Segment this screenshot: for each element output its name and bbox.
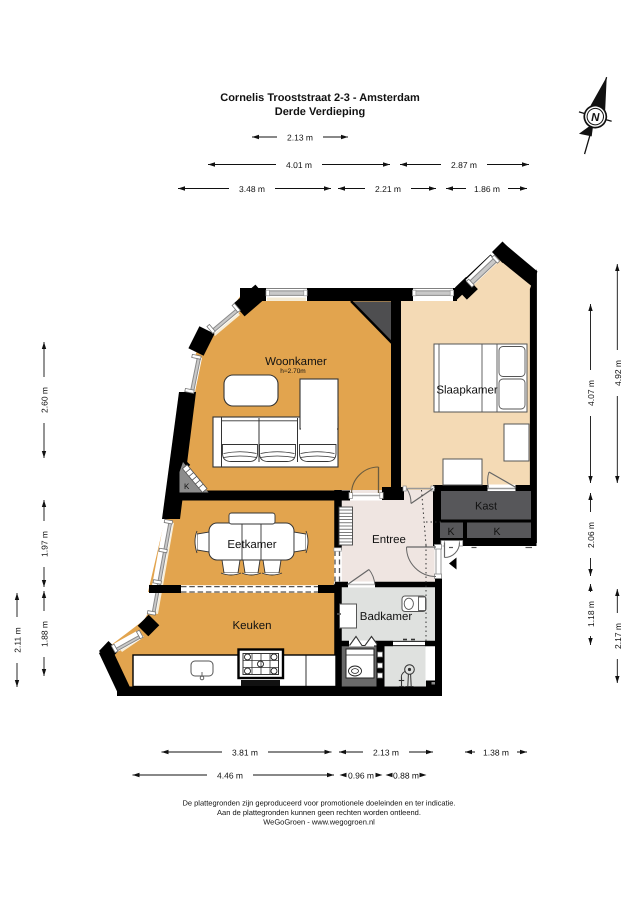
svg-text:h=2.70m: h=2.70m (280, 368, 305, 375)
svg-text:1.18 m: 1.18 m (586, 601, 596, 627)
svg-text:1.86 m: 1.86 m (474, 184, 500, 194)
svg-text:Slaapkamer: Slaapkamer (436, 385, 498, 397)
svg-text:2.13 m: 2.13 m (373, 748, 399, 758)
svg-text:4.07 m: 4.07 m (586, 380, 596, 406)
svg-text:2.87 m: 2.87 m (451, 160, 477, 170)
svg-text:K: K (493, 526, 500, 538)
svg-text:K: K (447, 526, 454, 538)
svg-text:4.46 m: 4.46 m (217, 771, 243, 781)
svg-text:2.21 m: 2.21 m (375, 184, 401, 194)
svg-text:2.11 m: 2.11 m (13, 627, 23, 652)
svg-text:2.17 m: 2.17 m (613, 623, 623, 649)
svg-text:Badkamer: Badkamer (360, 611, 413, 623)
svg-text:3.48 m: 3.48 m (239, 184, 265, 194)
svg-text:K: K (184, 482, 190, 491)
svg-text:4.92 m: 4.92 m (613, 360, 623, 386)
svg-text:2.13 m: 2.13 m (287, 133, 313, 143)
svg-text:De plattegronden zijn geproduc: De plattegronden zijn geproduceerd voor … (182, 799, 455, 808)
svg-text:1.38 m: 1.38 m (483, 748, 509, 758)
svg-text:Keuken: Keuken (232, 620, 271, 632)
svg-text:1.88 m: 1.88 m (40, 621, 50, 647)
svg-text:0.96 m: 0.96 m (348, 771, 374, 781)
svg-text:Entree: Entree (372, 534, 406, 546)
svg-text:Eetkamer: Eetkamer (227, 539, 276, 551)
svg-text:Woonkamer: Woonkamer (265, 356, 327, 368)
svg-text:Aan de plattegronden kunnen ge: Aan de plattegronden kunnen geen rechten… (217, 808, 421, 817)
svg-text:Cornelis Trooststraat 2-3 - Am: Cornelis Trooststraat 2-3 - Amsterdam (220, 92, 420, 104)
svg-text:2.06 m: 2.06 m (586, 522, 596, 548)
svg-text:1.97 m: 1.97 m (40, 531, 50, 557)
svg-text:Kast: Kast (475, 501, 497, 513)
svg-text:0.88 m: 0.88 m (393, 771, 419, 781)
svg-text:4.01 m: 4.01 m (286, 160, 312, 170)
svg-text:2.60 m: 2.60 m (40, 387, 50, 413)
svg-text:Derde Verdieping: Derde Verdieping (275, 106, 365, 118)
svg-text:N: N (591, 112, 600, 124)
svg-text:3.81 m: 3.81 m (232, 748, 258, 758)
svg-text:WeGoGroen - www.wegogroen.nl: WeGoGroen - www.wegogroen.nl (263, 818, 375, 827)
